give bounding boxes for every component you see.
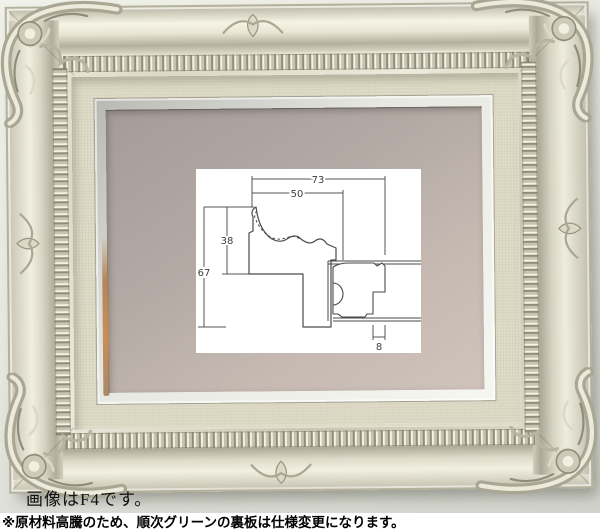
dim-label-8: 8	[376, 342, 382, 353]
dim-label-73: 73	[312, 175, 325, 186]
edge-crest-ornament-left	[15, 205, 42, 281]
wall-background: 73 50 38 67 8 画像はF4です。	[0, 0, 600, 513]
moulding-profile-path	[249, 207, 336, 327]
notice-bar: ※原材料高騰のため、順次グリーンの裏板は仕様変更になります。	[0, 513, 600, 532]
dim-label-38: 38	[221, 236, 234, 247]
product-image: 73 50 38 67 8 画像はF4です。 ※原材料高騰のため、順次グリーンの…	[0, 0, 600, 532]
edge-crest-ornament-bottom	[243, 459, 319, 486]
notice-text: ※原材料高騰のため、順次グリーンの裏板は仕様変更になります。	[0, 513, 600, 532]
edge-crest-ornament-top	[215, 12, 291, 39]
dim-label-50: 50	[291, 189, 304, 200]
edge-crest-ornament-right	[556, 191, 583, 267]
caption-text: 画像はF4です。	[26, 485, 152, 510]
dim-label-67: 67	[198, 268, 211, 279]
cross-section-diagram: 73 50 38 67 8	[196, 169, 421, 353]
stretcher-profile-path	[333, 263, 385, 317]
